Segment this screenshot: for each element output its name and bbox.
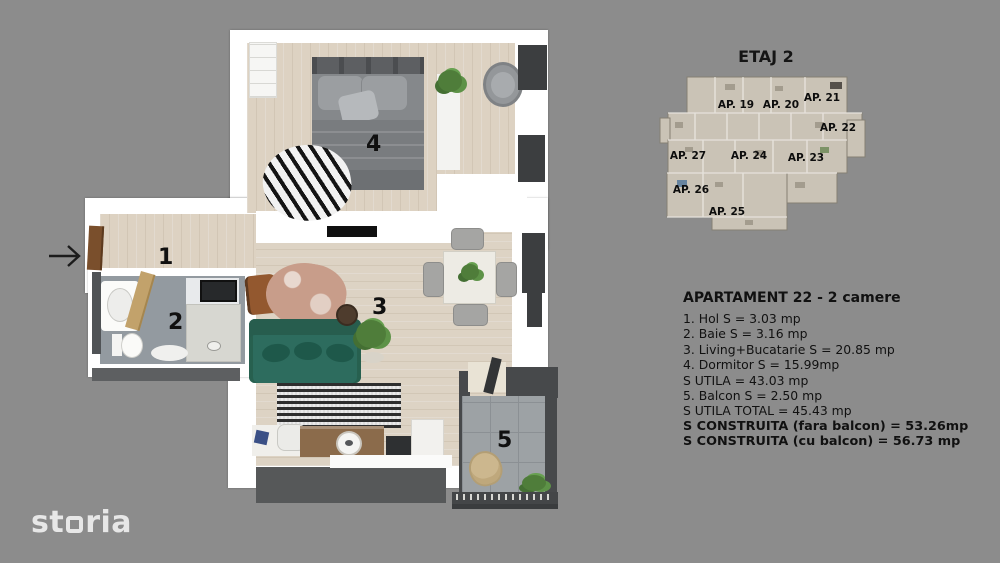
minimap-ap-22: AP. 22 xyxy=(820,122,856,134)
minimap-ap-27: AP. 27 xyxy=(670,150,706,162)
kitchen-faucet xyxy=(345,440,353,446)
dining-chair-left xyxy=(423,262,444,297)
balcony-plant xyxy=(522,475,546,491)
cooktop xyxy=(386,436,413,455)
detail-line-s-construita-fara-balcon: S CONSTRUITA (fara balcon) = 53.26mp xyxy=(683,419,983,434)
minimap-ap-23: AP. 23 xyxy=(788,152,824,164)
minimap-title: ETAJ 2 xyxy=(648,47,878,66)
minimap-ap-25: AP. 25 xyxy=(709,206,745,218)
detail-line-s-construita-cu-balcon: S CONSTRUITA (cu balcon) = 56.73 mp xyxy=(683,434,983,449)
south-wall xyxy=(256,467,446,503)
room-label-balcon: 5 xyxy=(497,430,512,452)
shower-drain xyxy=(207,341,221,351)
living-plant xyxy=(356,320,386,348)
washing-machine-door xyxy=(200,280,237,302)
room-label-baie: 2 xyxy=(168,312,183,334)
minimap-ap-20: AP. 20 xyxy=(763,99,799,111)
storia-logo: stria xyxy=(31,505,132,540)
toilet-bowl xyxy=(121,333,143,358)
floor-minimap: ETAJ 2 xyxy=(648,44,878,244)
coffee-table xyxy=(336,304,358,326)
detail-line-dormitor: 4. Dormitor S = 15.99mp xyxy=(683,357,983,372)
listing-floorplan-image: 1 2 3 4 5 ETAJ 2 xyxy=(0,0,1000,563)
round-armchair-cushion xyxy=(491,72,515,98)
balcony-railing-posts xyxy=(456,494,554,500)
minimap-ap-19: AP. 19 xyxy=(718,99,754,111)
room-label-living: 3 xyxy=(372,297,387,319)
minimap-ap-21: AP. 21 xyxy=(804,92,840,104)
storia-logo-prefix: st xyxy=(31,505,64,540)
minimap-ap-24: AP. 24 xyxy=(731,150,767,162)
wardrobe-upper xyxy=(518,45,547,90)
kitchen-window-sill xyxy=(330,455,452,468)
bedroom-se-console xyxy=(437,174,527,220)
kitchen-runner-rug xyxy=(277,383,401,428)
apartment-floorplan: 1 2 3 4 5 xyxy=(0,0,620,563)
detail-line-hol: 1. Hol S = 3.03 mp xyxy=(683,311,983,326)
shower xyxy=(186,304,241,362)
wardrobe-lower xyxy=(518,135,545,182)
room-label-dormitor: 4 xyxy=(366,134,381,156)
storia-logo-suffix: ria xyxy=(85,505,132,540)
detail-line-s-utila-total: S UTILA TOTAL = 45.43 mp xyxy=(683,403,983,418)
dining-chair-bottom xyxy=(453,304,488,326)
bath-mat xyxy=(151,345,188,361)
living-plant-basket xyxy=(362,352,384,363)
detail-line-balcon: 5. Balcon S = 2.50 mp xyxy=(683,388,983,403)
detail-line-baie: 2. Baie S = 3.16 mp xyxy=(683,326,983,341)
dining-chair-right xyxy=(496,262,517,297)
hall-floor xyxy=(100,214,256,268)
balcony-wall-right xyxy=(544,394,557,494)
dining-table-plant xyxy=(461,264,479,280)
tv xyxy=(327,226,377,237)
entry-door xyxy=(87,226,104,271)
blue-stool xyxy=(254,430,269,445)
kitchen-tall-unit xyxy=(522,233,545,293)
storia-logo-square-o-icon xyxy=(66,516,83,533)
bed-headboard xyxy=(312,57,424,74)
closet-shelf xyxy=(249,42,277,98)
bedroom-plant xyxy=(438,70,462,92)
detail-line-s-utila: S UTILA = 43.03 mp xyxy=(683,373,983,388)
bathroom-south-wall-shadow xyxy=(92,368,240,381)
hallway-wardrobe xyxy=(527,287,542,327)
apartment-details-title: APARTAMENT 22 - 2 camere xyxy=(683,290,983,306)
bathroom-wall-shadow xyxy=(92,272,101,354)
fridge xyxy=(411,419,444,458)
room-label-hol: 1 xyxy=(158,247,173,269)
entry-arrow-icon xyxy=(46,241,84,271)
sofa-pillow-2 xyxy=(294,342,322,360)
apartment-details: APARTAMENT 22 - 2 camere 1. Hol S = 3.03… xyxy=(683,290,983,450)
minimap-ap-26: AP. 26 xyxy=(673,184,709,196)
dining-chair-top xyxy=(451,228,484,250)
detail-line-living: 3. Living+Bucatarie S = 20.85 mp xyxy=(683,342,983,357)
